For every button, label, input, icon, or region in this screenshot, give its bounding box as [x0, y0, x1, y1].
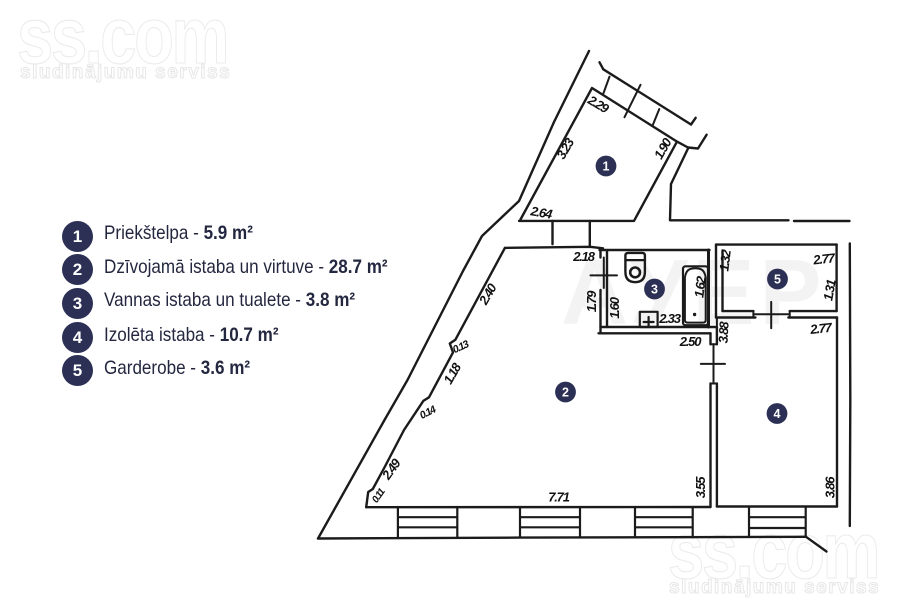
svg-text:3.23: 3.23	[553, 135, 577, 162]
svg-text:2.18: 2.18	[572, 249, 595, 264]
svg-text:2.33: 2.33	[658, 311, 681, 326]
svg-text:3.88: 3.88	[715, 320, 731, 343]
svg-text:5: 5	[774, 273, 781, 287]
svg-text:2.50: 2.50	[679, 334, 702, 349]
svg-text:2: 2	[562, 386, 569, 400]
svg-text:2.64: 2.64	[529, 203, 555, 222]
svg-text:1.18: 1.18	[440, 360, 464, 387]
svg-text:1.62: 1.62	[691, 274, 709, 298]
svg-text:2.77: 2.77	[809, 320, 834, 337]
svg-text:1.32: 1.32	[716, 248, 734, 272]
svg-text:2.40: 2.40	[475, 280, 500, 308]
svg-text:3: 3	[651, 283, 658, 297]
svg-text:2.49: 2.49	[378, 455, 404, 483]
svg-text:1: 1	[603, 160, 610, 174]
svg-text:4: 4	[774, 407, 781, 421]
svg-text:3.86: 3.86	[823, 476, 838, 498]
svg-text:1.79: 1.79	[584, 290, 599, 312]
svg-text:2.77: 2.77	[812, 250, 837, 267]
svg-text:7.71: 7.71	[548, 490, 569, 505]
svg-text:3.55: 3.55	[693, 476, 708, 498]
svg-text:1.60: 1.60	[607, 296, 622, 318]
